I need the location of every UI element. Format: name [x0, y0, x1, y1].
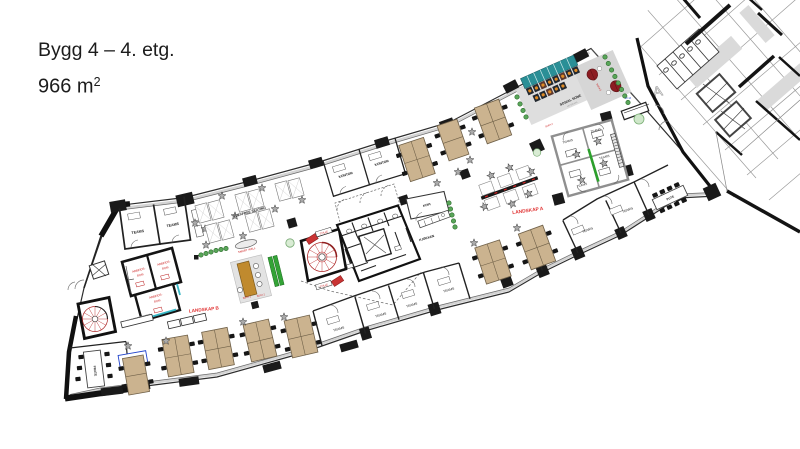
svg-text:966 m2: 966 m2 [38, 75, 101, 98]
svg-text:12 13: 12 13 [625, 97, 632, 100]
svg-text:Bygg 4 – 4. etg.: Bygg 4 – 4. etg. [38, 39, 175, 61]
